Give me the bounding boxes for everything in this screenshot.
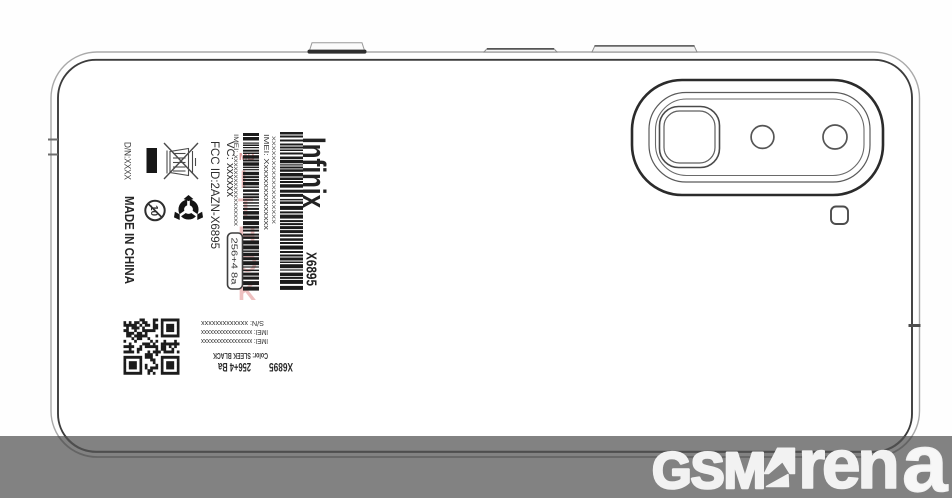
svg-text:FCC ID:2AZN-X6895: FCC ID:2AZN-X6895 bbox=[208, 141, 220, 249]
svg-text:10: 10 bbox=[148, 205, 159, 217]
svg-text:ren: ren bbox=[798, 425, 896, 498]
svg-text:MADE IN CHINA: MADE IN CHINA bbox=[122, 196, 136, 284]
svg-text:X6895: X6895 bbox=[303, 252, 320, 286]
svg-text:Color: SLEEK BLACK: Color: SLEEK BLACK bbox=[213, 351, 268, 360]
svg-text:IMEI: xxxxxxxxxxxxxxxxx: IMEI: xxxxxxxxxxxxxxxxx bbox=[201, 328, 268, 337]
svg-text:IMEI: Xxxxxxxxxxxxxxx: IMEI: Xxxxxxxxxxxxxxx bbox=[262, 134, 271, 231]
svg-text:IMEI: xxxxxxxxxxxxxxxxxx: IMEI: xxxxxxxxxxxxxxxxxx bbox=[232, 134, 239, 227]
svg-text:GSM: GSM bbox=[652, 442, 765, 498]
svg-text:256+4 Ba: 256+4 Ba bbox=[218, 360, 251, 374]
svg-text:a: a bbox=[902, 418, 949, 498]
svg-text:IMEI: xxxxxxxxxxxxxxxxx: IMEI: xxxxxxxxxxxxxxxxx bbox=[201, 337, 268, 346]
svg-text:256+4 8a: 256+4 8a bbox=[230, 238, 240, 285]
svg-text:Infinix: Infinix bbox=[296, 137, 332, 208]
svg-text:xxxxxxxxxxxxxxxxxx: xxxxxxxxxxxxxxxxxx bbox=[270, 136, 277, 225]
svg-text:S/N: xxxxxxxxxxxxx: S/N: xxxxxxxxxxxxx bbox=[201, 319, 264, 328]
svg-text:D/N:XXXX: D/N:XXXX bbox=[122, 142, 133, 181]
svg-text:X6895: X6895 bbox=[269, 360, 293, 374]
